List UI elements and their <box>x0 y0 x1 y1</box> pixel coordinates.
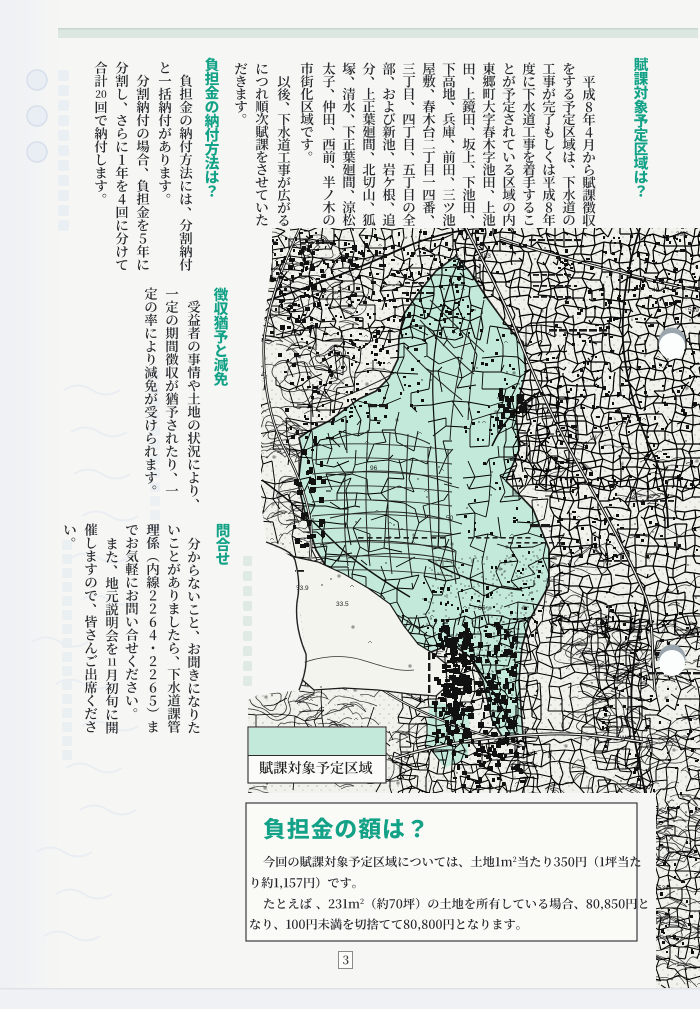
svg-text:85: 85 <box>560 615 568 622</box>
svg-text:539: 539 <box>688 307 699 314</box>
svg-text:96: 96 <box>370 465 378 472</box>
svg-text:W: W <box>620 735 627 742</box>
svg-text:65: 65 <box>478 605 486 612</box>
svg-text:536: 536 <box>658 885 669 892</box>
svg-text:483: 483 <box>480 253 491 260</box>
svg-text:W: W <box>590 435 597 442</box>
svg-text:33.5: 33.5 <box>336 601 349 608</box>
svg-text:39.6: 39.6 <box>676 231 689 238</box>
svg-text:4: 4 <box>648 765 652 772</box>
svg-text:50: 50 <box>446 515 454 522</box>
svg-text:48.6: 48.6 <box>652 287 665 294</box>
